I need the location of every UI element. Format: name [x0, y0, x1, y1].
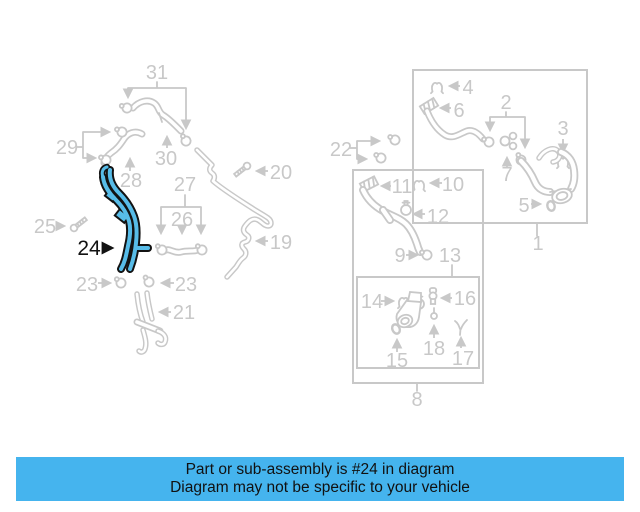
part-label-9: 9: [394, 245, 405, 267]
part-label-23: 23: [76, 274, 98, 296]
part-label-18: 18: [423, 338, 445, 360]
part-label-17: 17: [452, 348, 474, 370]
part-number-labels: 3130292827262524232321201922111012913141…: [34, 62, 569, 411]
fitting-18: [431, 308, 437, 319]
sensor-16: [429, 288, 436, 304]
part-label-20: 20: [270, 162, 292, 184]
part-label-23: 23: [175, 274, 197, 296]
parts-diagram-image: 3130292827262524232321201922111012913141…: [0, 0, 640, 512]
parts-diagram: 3130292827262524232321201922111012913141…: [0, 0, 640, 512]
part-label-21: 21: [173, 302, 195, 324]
part-label-15: 15: [386, 350, 408, 372]
part-label-4: 4: [462, 77, 473, 99]
part-label-5: 5: [518, 195, 529, 217]
part-label-24: 24: [77, 237, 101, 260]
part-label-11: 11: [392, 176, 413, 198]
notice-banner: Part or sub-assembly is #24 in diagram D…: [16, 457, 624, 501]
elbow-pipe-part: [396, 292, 421, 329]
part-label-14: 14: [361, 291, 383, 313]
part-label-31: 31: [146, 62, 168, 84]
hose-30-group: [119, 82, 192, 148]
part-label-6: 6: [453, 100, 464, 122]
part-label-28: 28: [120, 170, 142, 192]
part-label-26: 26: [171, 209, 193, 231]
part-label-3: 3: [557, 118, 568, 140]
part-label-8: 8: [411, 389, 422, 411]
part-label-27: 27: [174, 174, 196, 196]
hose-21-group: [98, 275, 174, 352]
part-label-12: 12: [427, 206, 449, 228]
part-label-22: 22: [330, 139, 352, 161]
part-label-10: 10: [442, 174, 464, 196]
clamps-22-group: [350, 133, 400, 163]
part-label-2: 2: [500, 92, 511, 114]
clip-17: [455, 320, 467, 335]
part-label-7: 7: [501, 164, 512, 186]
part-label-30: 30: [155, 148, 177, 170]
banner-line2: Diagram may not be specific to your vehi…: [170, 479, 470, 497]
part-label-16: 16: [454, 288, 476, 310]
banner-line1: Part or sub-assembly is #24 in diagram: [186, 461, 455, 479]
part-label-29: 29: [56, 137, 78, 159]
hose-28-group: [76, 125, 142, 171]
part-label-1: 1: [532, 233, 543, 255]
pipe-19-group: [197, 150, 271, 277]
part-label-13: 13: [439, 245, 461, 267]
part-label-25: 25: [34, 216, 56, 238]
bolt-25-group: [57, 216, 88, 233]
part-label-19: 19: [270, 232, 292, 254]
tee-fitting-7: [501, 133, 517, 150]
